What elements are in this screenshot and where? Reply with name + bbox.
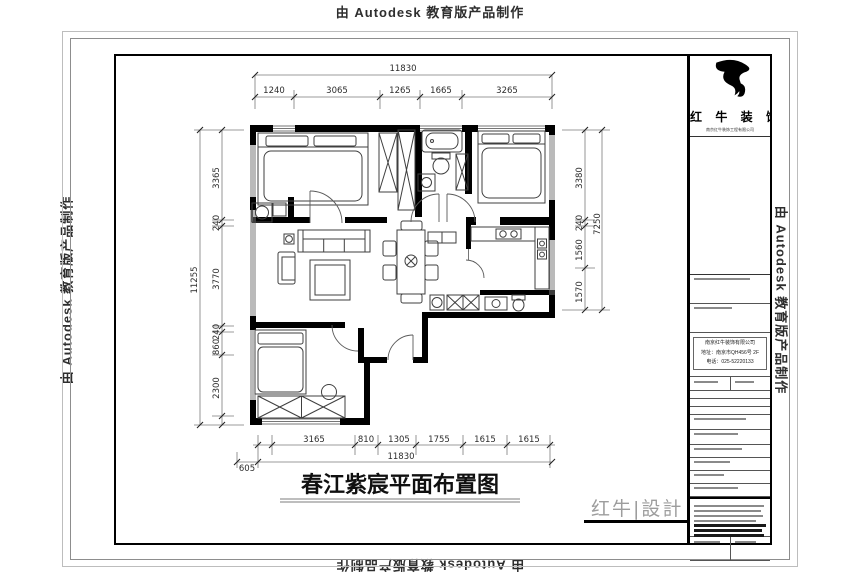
titleblock-field-row — [690, 307, 770, 333]
titleblock-field-row — [690, 487, 770, 497]
titleblock-field-row — [690, 461, 770, 471]
furniture — [252, 130, 549, 418]
windows — [251, 126, 554, 424]
svg-text:3265: 3265 — [496, 86, 518, 96]
titleblock-field-row — [690, 391, 770, 399]
titleblock-empty-area — [690, 137, 770, 275]
titleblock-split-row — [690, 377, 770, 391]
svg-text:1755: 1755 — [428, 435, 450, 445]
titleblock-field-row — [690, 399, 770, 407]
brand-logo — [690, 56, 770, 108]
titleblock-field-row — [690, 448, 770, 458]
titleblock-notes — [690, 497, 770, 537]
svg-text:605: 605 — [239, 464, 255, 474]
floor-lamp-icon — [284, 234, 294, 244]
wardrobe-icon-topleft — [379, 130, 415, 210]
svg-text:3380: 3380 — [575, 167, 585, 189]
walls — [250, 125, 555, 425]
company-address: 地址：南京市QH456号 2F — [694, 349, 766, 359]
svg-text:240: 240 — [575, 215, 585, 231]
svg-text:7250: 7250 — [593, 213, 603, 235]
svg-text:11830: 11830 — [389, 64, 416, 74]
brand-name: 红 牛 装 饰 — [690, 108, 770, 125]
drawing-title: 春江紫宸平面布置图 — [301, 472, 499, 498]
title-underline — [280, 499, 520, 502]
bathtub-icon — [422, 130, 462, 152]
company-info-block: 南京红牛装饰有限公司 地址：南京市QH456号 2F 电话：025-522201… — [690, 333, 770, 377]
svg-text:1240: 1240 — [263, 86, 285, 96]
bull-logo-icon — [707, 59, 753, 99]
floor-plan-drawing: 11830 1240 3065 1265 1665 3265 11255 336… — [114, 54, 687, 545]
bathroom2-fixtures — [430, 295, 525, 311]
autodesk-watermark-top: 由 Autodesk 教育版产品制作 — [336, 2, 524, 21]
dining-table-icon — [383, 221, 438, 303]
svg-text:3365: 3365 — [212, 167, 222, 189]
titleblock-field-row — [690, 418, 770, 430]
svg-text:240: 240 — [212, 324, 222, 340]
svg-text:11255: 11255 — [190, 266, 200, 293]
design-mark: 红牛|設計 — [591, 498, 683, 520]
svg-text:1265: 1265 — [389, 86, 411, 96]
svg-text:1665: 1665 — [430, 86, 452, 96]
titleblock-field-row — [690, 433, 770, 445]
bed-icon-topright — [478, 131, 545, 203]
svg-text:240: 240 — [212, 215, 222, 231]
dimension-lines — [194, 75, 610, 468]
svg-text:1305: 1305 — [388, 435, 410, 445]
armchair-icon — [278, 252, 295, 284]
design-mark-underline — [584, 520, 687, 523]
title-block: 红 牛 装 饰 南京红牛装饰工程有限公司 南京红牛装饰有限公司 地址：南京市QH… — [687, 56, 770, 543]
titleblock-signature-row — [690, 537, 770, 561]
company-name: 南京红牛装饰有限公司 — [694, 339, 766, 349]
kitchen-counter-icon — [471, 227, 549, 289]
coffee-table-icon — [310, 260, 350, 300]
bed-icon-topleft — [258, 133, 368, 205]
stool-icon — [322, 385, 337, 400]
svg-text:1560: 1560 — [575, 239, 585, 261]
cad-floorplan-sheet: { "watermarks": { "autodesk": "由 Autodes… — [0, 0, 860, 580]
svg-text:1615: 1615 — [474, 435, 496, 445]
company-phone: 电话：025-52220133 — [694, 358, 766, 368]
titleblock-field-row — [690, 278, 770, 304]
toilet-icon — [432, 153, 450, 174]
svg-text:3065: 3065 — [326, 86, 348, 96]
svg-text:3165: 3165 — [303, 435, 325, 445]
svg-text:3770: 3770 — [212, 268, 222, 290]
brand-subtitle: 南京红牛装饰工程有限公司 — [690, 125, 770, 137]
svg-text:2300: 2300 — [212, 377, 222, 399]
bed-icon-bottomleft — [255, 330, 306, 394]
svg-text:860: 860 — [212, 339, 222, 355]
titleblock-field-row — [690, 407, 770, 415]
svg-text:810: 810 — [358, 435, 374, 445]
titleblock-field-row — [690, 474, 770, 484]
svg-text:1570: 1570 — [575, 281, 585, 303]
svg-text:11830: 11830 — [387, 452, 414, 462]
sofa-icon — [298, 230, 370, 252]
svg-text:1615: 1615 — [518, 435, 540, 445]
